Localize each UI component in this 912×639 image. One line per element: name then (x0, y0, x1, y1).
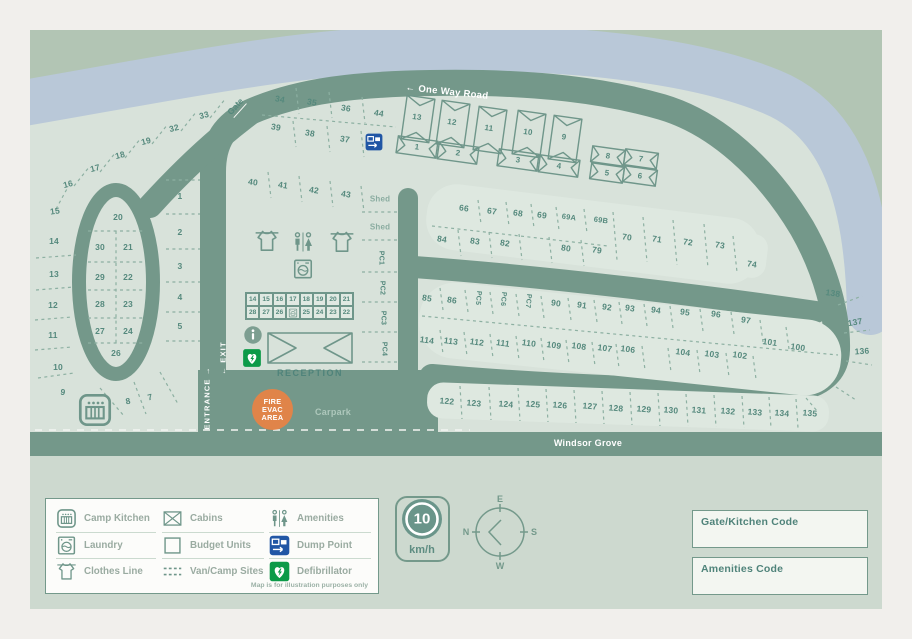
legend-item-label: Cabins (190, 513, 223, 524)
speed-limit-value: 10 (414, 511, 431, 528)
legend-item-label: Laundry (84, 540, 123, 551)
gate-kitchen-code-box: Gate/Kitchen Code (692, 510, 868, 548)
defibrillator-icon (269, 561, 290, 582)
legend-item-dump-point: Dump Point (269, 533, 371, 560)
legend-item-budget-units: Budget Units (162, 533, 264, 560)
gate-kitchen-code-label: Gate/Kitchen Code (693, 511, 867, 533)
dump-point-icon (269, 535, 290, 556)
legend-item-label: Clothes Line (84, 566, 143, 577)
carpark-area (198, 370, 438, 432)
legend-item-label: Budget Units (190, 540, 251, 551)
legend-column-accommodation: CabinsBudget UnitsVan/Camp Sites (162, 506, 264, 585)
legend-item-clothes-line: Clothes Line (56, 559, 156, 585)
legend-column-facilities: Camp KitchenLaundryClothes Line (56, 506, 156, 585)
legend-item-label: Amenities (297, 513, 344, 524)
legend-item-label: Dump Point (297, 540, 352, 551)
windsor-grove-road (30, 432, 882, 456)
clothes-line-icon (56, 561, 77, 582)
legend-item-defibrillator: Defibrillator (269, 559, 371, 585)
legend-item-amenities: Amenities (269, 506, 371, 533)
laundry-icon (56, 535, 77, 556)
budget-units-icon (162, 535, 183, 556)
legend-item-camp-kitchen: Camp Kitchen (56, 506, 156, 533)
cabins-icon (162, 508, 183, 529)
legend: Camp KitchenLaundryClothes Line CabinsBu… (45, 498, 379, 594)
map-disclaimer: Map is for illustration purposes only (251, 582, 368, 589)
compass-east: E (497, 494, 503, 504)
legend-item-laundry: Laundry (56, 533, 156, 560)
camp-kitchen-icon (56, 508, 77, 529)
legend-item-cabins: Cabins (162, 506, 264, 533)
compass-west: W (496, 561, 505, 571)
map-area (18, 30, 882, 456)
legend-item-label: Camp Kitchen (84, 513, 150, 524)
amenities-code-label: Amenities Code (693, 558, 867, 580)
compass-north: N (463, 527, 470, 537)
speed-limit-unit: km/h (409, 544, 435, 556)
compass-south: S (531, 527, 537, 537)
amenities-code-box: Amenities Code (692, 557, 868, 595)
legend-item-van-camp: Van/Camp Sites (162, 559, 264, 585)
amenities-icon (269, 508, 290, 529)
van-camp-icon (162, 561, 183, 582)
legend-column-services: AmenitiesDump PointDefibrillator (269, 506, 371, 585)
park-map-screen: ← One Way Road Windsor Grove ENTRANCE → … (0, 0, 912, 639)
legend-item-label: Van/Camp Sites (190, 566, 264, 577)
legend-item-label: Defibrillator (297, 566, 352, 577)
